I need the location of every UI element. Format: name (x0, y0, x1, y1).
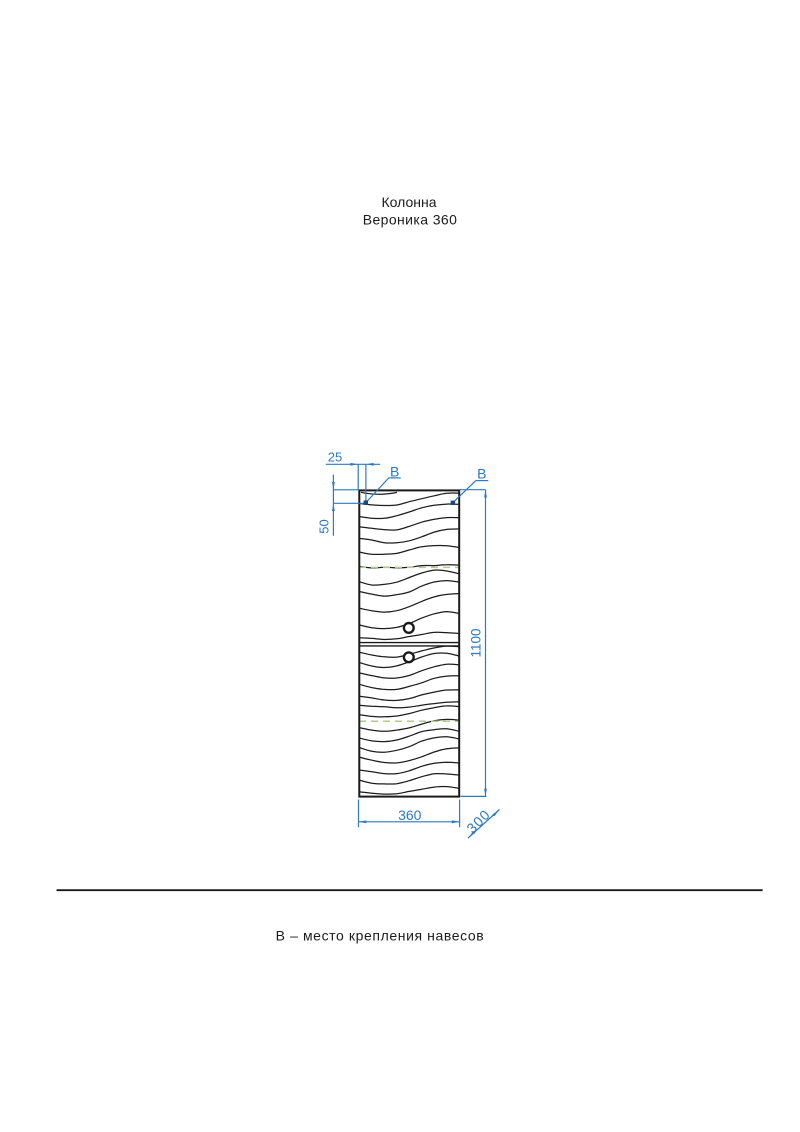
svg-text:50: 50 (317, 519, 332, 533)
svg-text:В – место крепления навесов: В – место крепления навесов (276, 928, 485, 944)
svg-text:25: 25 (328, 450, 342, 465)
svg-text:300: 300 (463, 806, 493, 836)
svg-text:Вероника 360: Вероника 360 (363, 212, 458, 228)
svg-text:B: B (390, 464, 399, 480)
svg-text:1100: 1100 (469, 628, 484, 657)
svg-text:B: B (477, 466, 486, 482)
svg-text:Колонна: Колонна (382, 194, 437, 210)
svg-text:360: 360 (398, 807, 422, 823)
